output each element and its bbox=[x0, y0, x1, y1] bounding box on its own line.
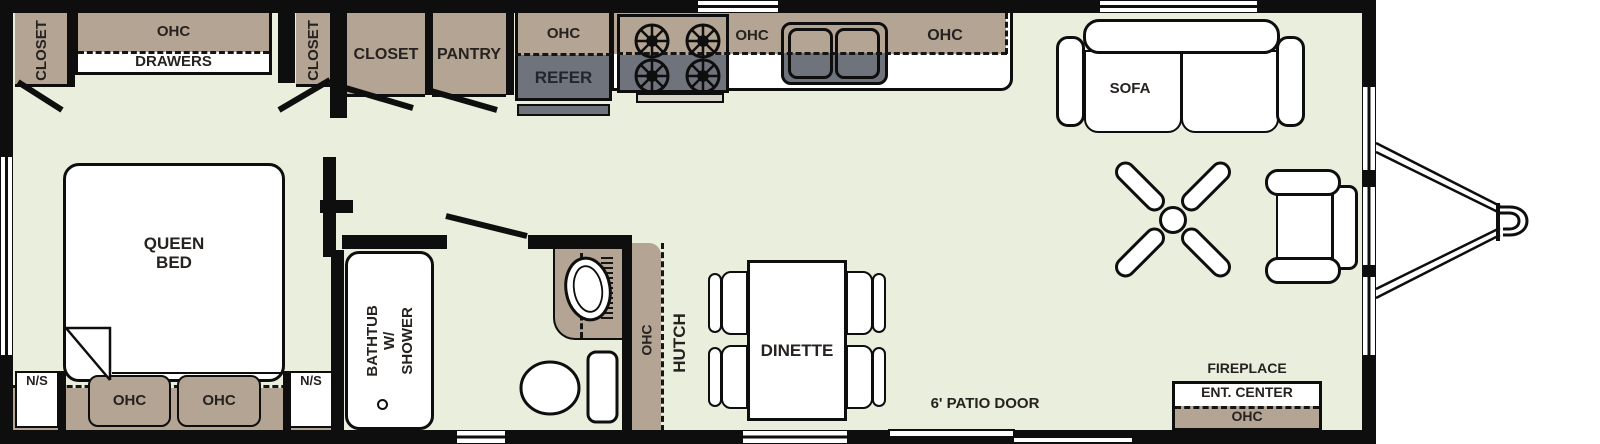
nightstand-right bbox=[289, 371, 333, 428]
pantry-cabinet bbox=[432, 13, 506, 97]
dinette-chair-seat bbox=[846, 345, 873, 409]
armchair-armrest-bottom bbox=[1265, 257, 1341, 284]
wall-pantry-right bbox=[506, 13, 514, 95]
wardrobe-dashed-line bbox=[78, 51, 269, 54]
patio-door-panel-right bbox=[1012, 436, 1134, 444]
window-front-middle bbox=[1363, 187, 1375, 265]
dinette-table bbox=[747, 260, 847, 421]
wall-bath-top-left bbox=[342, 235, 447, 249]
window-sofa bbox=[1100, 1, 1257, 12]
wall-ns-stub-left bbox=[58, 371, 66, 430]
stove-drawer bbox=[636, 93, 724, 103]
kitchen-ohc-dashed-line bbox=[617, 52, 1007, 55]
sofa-back bbox=[1083, 19, 1280, 54]
floorplan: CLOSET OHC DRAWERS CLOSET CLOSET PANTRY … bbox=[0, 0, 1600, 444]
hutch-label: HUTCH bbox=[664, 300, 696, 385]
sofa-cushion-left bbox=[1084, 50, 1182, 133]
med-cabinet-label: MED bbox=[584, 268, 604, 312]
wall-closet-divider-c bbox=[330, 10, 347, 118]
fridge-ohc-cabinet bbox=[515, 13, 612, 55]
bathtub-label: BATHTUB W/ SHOWER bbox=[345, 251, 434, 430]
wall-bottom bbox=[0, 430, 1376, 444]
hitch-coupler bbox=[1500, 207, 1527, 235]
refrigerator-base bbox=[517, 104, 610, 116]
window-front-upper bbox=[1363, 87, 1375, 170]
hutch-ohc-label: OHC bbox=[632, 305, 661, 375]
wall-bath-top-right bbox=[528, 235, 632, 249]
kitchen-ohc-end-dashed bbox=[1005, 13, 1008, 54]
dinette-chair-seat bbox=[721, 271, 748, 335]
window-front-lower bbox=[1363, 277, 1375, 355]
window-bedroom bbox=[1, 157, 12, 355]
dinette-chair-back bbox=[872, 347, 886, 407]
wall-bedroom-jog bbox=[320, 200, 353, 213]
sofa-armrest-right bbox=[1276, 36, 1305, 127]
wall-bath-hutch bbox=[622, 248, 632, 431]
refrigerator bbox=[515, 55, 612, 101]
queen-bed bbox=[63, 163, 285, 382]
window-bath bbox=[457, 431, 505, 443]
sofa-armrest-left bbox=[1056, 36, 1085, 127]
wardrobe-unit bbox=[75, 13, 272, 75]
nightstand-left bbox=[15, 371, 59, 428]
ent-center-ohc bbox=[1175, 406, 1319, 428]
closet-left-label: CLOSET bbox=[15, 13, 67, 87]
ent-center-unit bbox=[1172, 381, 1322, 431]
wall-closet-divider-b bbox=[278, 13, 295, 83]
patio-door-panel-left bbox=[888, 429, 1015, 438]
window-kitchen bbox=[698, 1, 778, 12]
vanity-dashed-line bbox=[580, 253, 583, 338]
dinette-chair-seat bbox=[721, 345, 748, 409]
closet-mid-label: CLOSET bbox=[296, 13, 330, 87]
wall-closet-pantry-divider bbox=[425, 13, 433, 95]
wall-ns-stub-right bbox=[283, 371, 291, 430]
dinette-chair-back bbox=[708, 273, 722, 333]
bedroom-ohc-left bbox=[88, 375, 171, 427]
closet-hall-cabinet bbox=[347, 13, 425, 97]
trailer-tongue bbox=[1376, 143, 1527, 298]
dinette-chair-seat bbox=[846, 271, 873, 335]
fridge-dashed-line bbox=[515, 53, 612, 56]
window-dinette bbox=[743, 431, 847, 443]
sofa-cushion-right bbox=[1181, 50, 1279, 133]
armchair-seat bbox=[1276, 193, 1334, 259]
wardrobe-ohc bbox=[78, 13, 269, 52]
dinette-chair-back bbox=[708, 347, 722, 407]
fan-hub bbox=[1159, 206, 1187, 234]
wall-bath-left bbox=[331, 250, 344, 431]
armchair-back bbox=[1331, 185, 1358, 270]
armchair-armrest-top bbox=[1265, 169, 1341, 196]
wall-closet-divider-a bbox=[67, 13, 75, 87]
dinette-chair-back bbox=[872, 273, 886, 333]
bedroom-ohc-right bbox=[177, 375, 261, 427]
bed-foot-line bbox=[112, 372, 282, 374]
